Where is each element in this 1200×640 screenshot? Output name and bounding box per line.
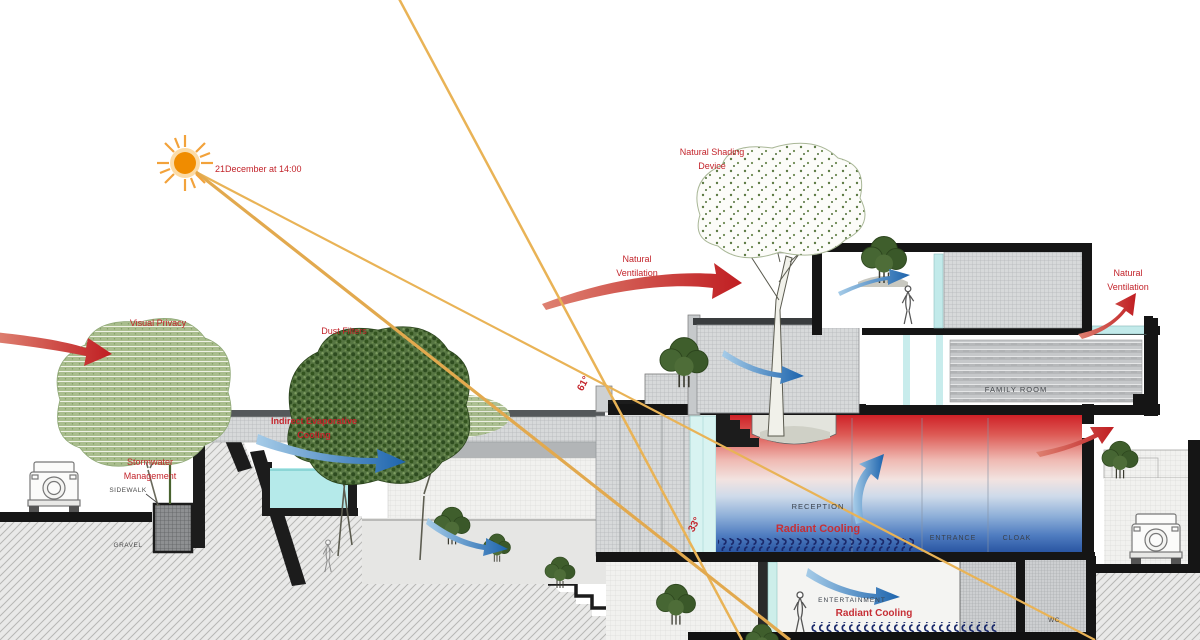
- car-icon-left: [28, 462, 80, 512]
- label-wc: WC: [1048, 617, 1060, 624]
- passive-design-section-diagram: 21December at 14:00 Visual Privacy Dust …: [0, 0, 1200, 640]
- label-visual-privacy: Visual Privacy: [130, 318, 187, 328]
- label-nat-vent-left-2: Ventilation: [616, 268, 658, 278]
- label-gravel: GRAVEL: [114, 542, 143, 549]
- label-nat-vent-right-2: Ventilation: [1107, 282, 1149, 292]
- sun-icon: [157, 135, 213, 191]
- label-cloak: CLOAK: [1003, 535, 1032, 542]
- label-family-room: FAMILY ROOM: [985, 385, 1047, 394]
- label-sun-date: 21December at 14:00: [215, 164, 302, 174]
- roof-slab: [812, 243, 1092, 252]
- label-reception: RECEPTION: [792, 502, 845, 511]
- label-stormwater-2: Management: [124, 471, 177, 481]
- label-evap-1: Indirect Evaporative: [271, 416, 357, 426]
- label-radiant-cooling-lower: Radiant Cooling: [836, 608, 913, 619]
- label-sidewalk: SIDEWALK: [109, 487, 147, 494]
- top-block-wall: [944, 252, 1082, 328]
- car-icon-right: [1130, 514, 1182, 564]
- label-radiant-cooling: Radiant Cooling: [776, 523, 860, 535]
- diagram-canvas: 21December at 14:00 Visual Privacy Dust …: [0, 0, 1200, 640]
- ground-floor-slab: [596, 552, 1088, 562]
- label-nat-vent-left-1: Natural: [622, 254, 651, 264]
- stormwater-planter: [154, 504, 192, 552]
- wc-room: [1025, 560, 1086, 640]
- label-stormwater-1: Stormwater: [127, 457, 173, 467]
- street-line: [0, 512, 152, 522]
- service-core: [596, 416, 690, 556]
- label-entrance: ENTRANCE: [930, 535, 977, 542]
- radiant-coil-row: [718, 538, 914, 551]
- label-dust-filters: Dust Filters: [321, 326, 367, 336]
- label-nat-vent-right-1: Natural: [1113, 268, 1142, 278]
- label-evap-2: Cooling: [297, 430, 331, 440]
- label-shading-2: Device: [698, 161, 726, 171]
- label-entertainment: ENTERTAINMENT: [818, 597, 886, 604]
- label-shading-1: Natural Shading: [680, 147, 745, 157]
